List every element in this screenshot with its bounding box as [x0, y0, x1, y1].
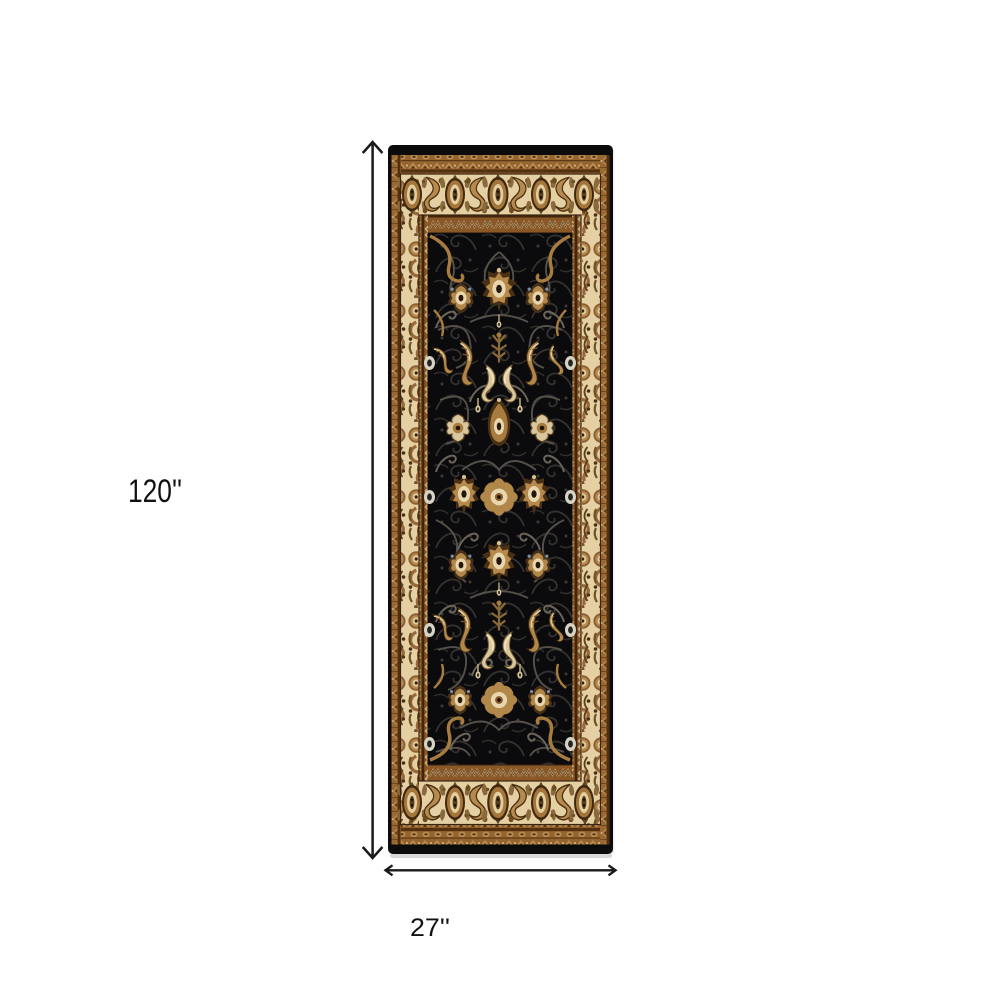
svg-text:120'': 120'' — [128, 473, 182, 509]
svg-text:27'': 27'' — [410, 914, 450, 942]
